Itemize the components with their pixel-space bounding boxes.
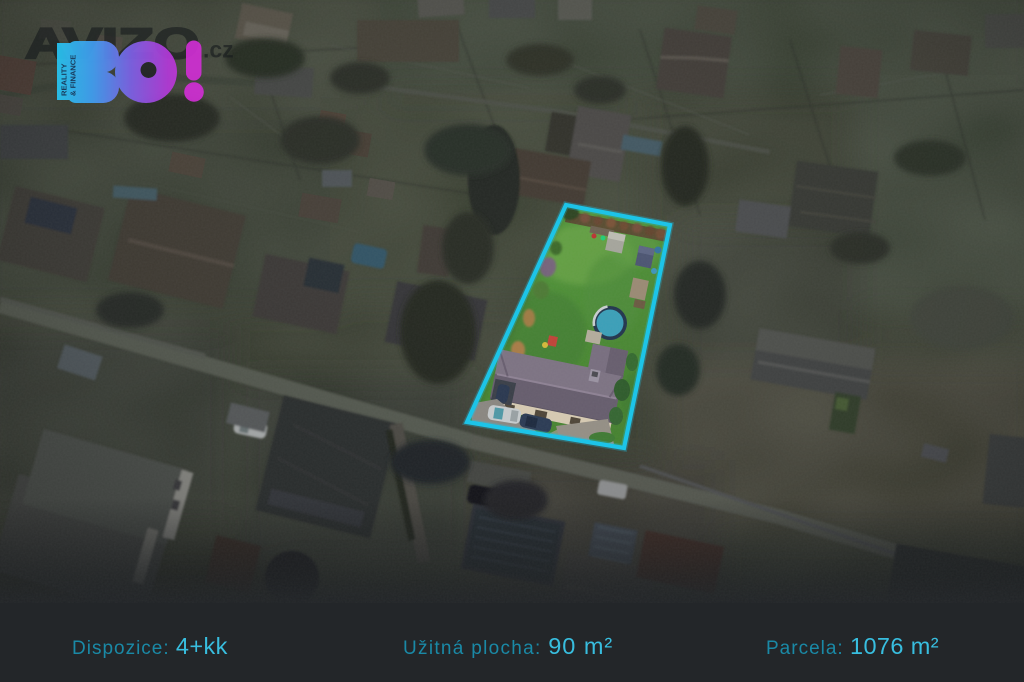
svg-text:.cz: .cz <box>203 37 234 63</box>
svg-text:& FINANCE: & FINANCE <box>69 55 78 96</box>
svg-text:REALITY: REALITY <box>60 64 69 97</box>
